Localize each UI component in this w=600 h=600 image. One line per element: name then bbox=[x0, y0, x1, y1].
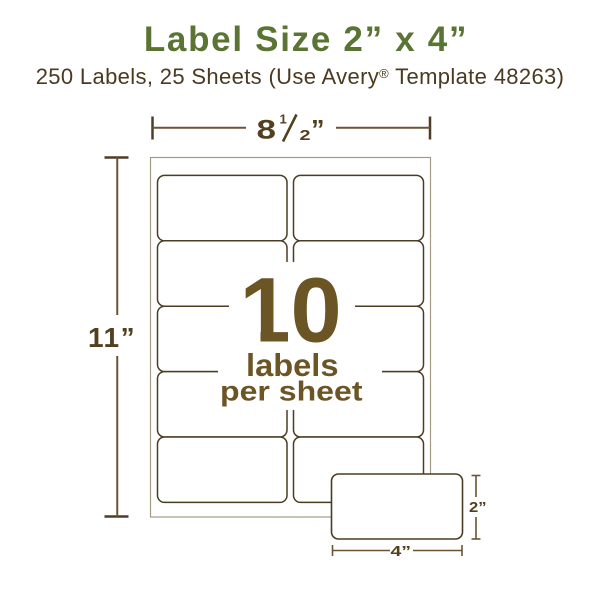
svg-text:8: 8 bbox=[257, 115, 277, 145]
svg-text:2: 2 bbox=[300, 127, 311, 144]
svg-text:1: 1 bbox=[280, 112, 287, 127]
svg-text:4”: 4” bbox=[391, 543, 412, 560]
svg-text:2”: 2” bbox=[469, 499, 487, 516]
svg-text:”: ” bbox=[311, 115, 325, 145]
svg-text:per sheet: per sheet bbox=[220, 376, 363, 407]
svg-text:11”: 11” bbox=[88, 322, 136, 353]
